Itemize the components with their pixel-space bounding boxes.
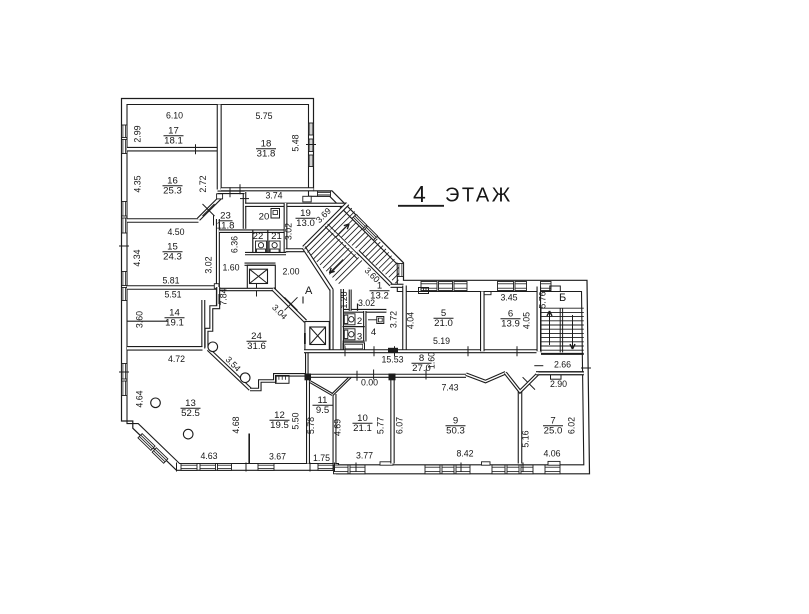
svg-text:6.02: 6.02 [567, 417, 577, 434]
svg-text:21.1: 21.1 [353, 423, 372, 434]
svg-text:13.0: 13.0 [296, 218, 315, 229]
svg-text:2.66: 2.66 [554, 360, 571, 370]
svg-text:1.75: 1.75 [313, 453, 330, 463]
svg-text:3.02: 3.02 [284, 223, 294, 240]
svg-text:18.1: 18.1 [164, 136, 183, 147]
svg-text:1.28: 1.28 [339, 291, 349, 308]
svg-text:5.81: 5.81 [162, 276, 179, 286]
svg-text:3.60: 3.60 [135, 311, 145, 328]
svg-text:5.75: 5.75 [255, 111, 272, 121]
svg-text:25.0: 25.0 [544, 426, 563, 437]
svg-text:3.45: 3.45 [500, 293, 517, 303]
svg-text:6.07: 6.07 [395, 417, 405, 434]
svg-text:25.3: 25.3 [163, 186, 182, 197]
svg-text:50.3: 50.3 [446, 426, 465, 437]
svg-text:6.36: 6.36 [230, 236, 240, 253]
svg-text:5.48: 5.48 [291, 134, 301, 151]
svg-text:2.72: 2.72 [198, 175, 208, 192]
svg-text:2.90: 2.90 [550, 379, 567, 389]
svg-text:Б: Б [559, 292, 566, 304]
svg-text:7.84: 7.84 [219, 288, 229, 305]
svg-text:6.10: 6.10 [166, 111, 183, 121]
svg-text:5.76: 5.76 [538, 291, 548, 308]
svg-text:5.50: 5.50 [291, 412, 301, 429]
svg-text:5.77: 5.77 [376, 417, 386, 434]
svg-text:3.72: 3.72 [389, 311, 399, 328]
svg-text:13.9: 13.9 [501, 319, 520, 330]
svg-text:4.35: 4.35 [133, 175, 143, 192]
svg-text:15.53: 15.53 [381, 355, 403, 365]
svg-text:31.8: 31.8 [257, 149, 276, 160]
svg-text:19.1: 19.1 [165, 318, 184, 329]
svg-text:20: 20 [259, 212, 270, 223]
svg-text:4.50: 4.50 [167, 227, 184, 237]
svg-text:ЭТАЖ: ЭТАЖ [445, 185, 513, 207]
svg-text:2.00: 2.00 [282, 267, 299, 277]
svg-text:1.60: 1.60 [222, 263, 239, 273]
svg-text:7.43: 7.43 [441, 383, 458, 393]
svg-text:4.64: 4.64 [135, 390, 145, 407]
svg-text:4: 4 [413, 181, 426, 207]
svg-text:3.67: 3.67 [269, 452, 286, 462]
svg-text:21: 21 [271, 231, 282, 242]
svg-text:0.00: 0.00 [361, 378, 378, 388]
svg-text:1.60: 1.60 [427, 352, 437, 369]
svg-text:4.68: 4.68 [231, 416, 241, 433]
svg-text:24.3: 24.3 [163, 252, 182, 263]
svg-text:5.78: 5.78 [306, 417, 316, 434]
svg-text:31.6: 31.6 [247, 341, 266, 352]
svg-text:4: 4 [371, 327, 377, 338]
svg-text:52.5: 52.5 [181, 408, 200, 419]
svg-text:4.04: 4.04 [406, 312, 416, 329]
svg-text:4.05: 4.05 [522, 312, 532, 329]
svg-text:3.77: 3.77 [356, 451, 373, 461]
svg-text:4.72: 4.72 [168, 354, 185, 364]
svg-text:3.02: 3.02 [204, 256, 214, 273]
svg-text:4.34: 4.34 [132, 249, 142, 266]
svg-text:2: 2 [357, 316, 362, 327]
svg-text:19.5: 19.5 [270, 420, 289, 431]
svg-text:5.19: 5.19 [433, 336, 450, 346]
svg-text:11.8: 11.8 [217, 221, 235, 232]
svg-text:2.99: 2.99 [133, 125, 143, 142]
svg-text:5.16: 5.16 [521, 430, 531, 447]
svg-text:3.74: 3.74 [265, 191, 282, 201]
svg-text:А: А [305, 285, 313, 297]
svg-text:3.02: 3.02 [358, 298, 375, 308]
svg-text:3: 3 [357, 332, 362, 343]
svg-text:4.06: 4.06 [543, 449, 560, 459]
svg-text:5.51: 5.51 [164, 290, 181, 300]
svg-text:4.63: 4.63 [200, 451, 217, 461]
svg-text:21.0: 21.0 [434, 318, 453, 329]
svg-text:22: 22 [253, 231, 264, 242]
svg-text:8.42: 8.42 [456, 449, 473, 459]
svg-text:4.69: 4.69 [333, 419, 343, 436]
svg-text:9.5: 9.5 [316, 405, 329, 416]
